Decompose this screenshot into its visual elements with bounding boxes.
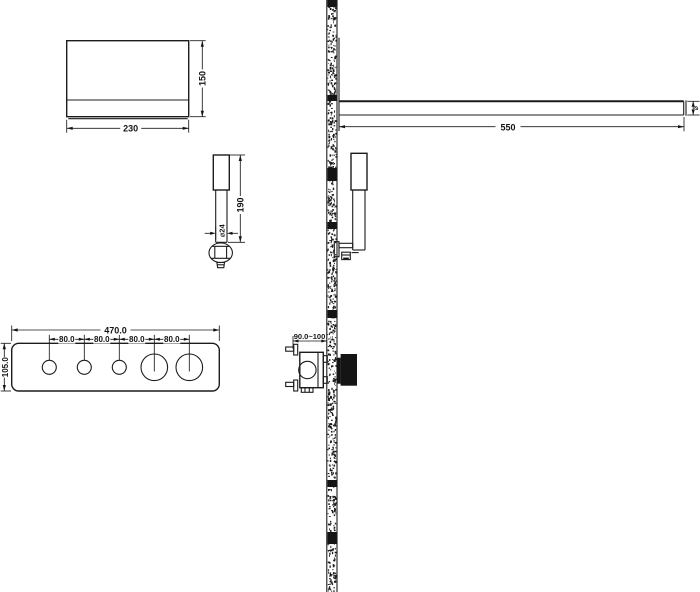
hand-shower-front-view: ⌀24 190 [205, 155, 246, 268]
dim-label-valve-depth: 90.0~100 [294, 332, 326, 341]
panel-knob-small-1 [42, 360, 56, 374]
dim-label-spacing-3: 80.0 [129, 335, 145, 344]
dim-label-panel-width: 470.0 [104, 325, 127, 335]
dim-handshower-height: 190 [228, 155, 246, 242]
dim-overhead-width: 230 [67, 120, 189, 134]
dim-panel-height: 105.0 [0, 343, 11, 391]
hand-shower-side-view [334, 153, 367, 259]
panel-knob-small-3 [112, 360, 126, 374]
dim-label-panel-height: 105.0 [1, 357, 10, 378]
dim-label-arm-end-marker: ⌀ [693, 106, 700, 110]
dim-label-handshower-diameter: ⌀24 [218, 224, 227, 238]
dim-label-overhead-height: 150 [198, 71, 208, 86]
overhead-shower-view: 150 230 [67, 41, 208, 134]
dim-label-spacing-4: 80.0 [164, 335, 180, 344]
dim-arm-end-marker: ⌀ [687, 101, 700, 115]
control-panel-front-view: 470.0 80.0 80.0 80.0 80.0 [0, 325, 219, 391]
control-panel-side-view: 90.0~100 [286, 332, 357, 393]
dim-overhead-height: 150 [190, 41, 208, 117]
shower-arm-view: 550 ⌀ [339, 38, 700, 133]
shower-installation-drawing: 150 230 ⌀ [0, 0, 700, 592]
dim-label-overhead-width: 230 [123, 124, 138, 134]
panel-knob-small-2 [77, 360, 91, 374]
dim-label-spacing-1: 80.0 [59, 335, 75, 344]
dim-label-arm-length: 550 [500, 122, 515, 132]
dim-label-handshower-height: 190 [236, 197, 246, 212]
wall-hatch-texture [327, 0, 337, 592]
dim-arm-length: 550 [339, 117, 684, 132]
dim-label-spacing-2: 80.0 [94, 335, 110, 344]
wall-section [327, 0, 338, 592]
dim-handshower-diameter: ⌀24 [205, 224, 238, 240]
valve-knob [341, 354, 357, 386]
technical-drawing-page: 150 230 ⌀ [0, 0, 700, 592]
valve-knob-stem [337, 358, 340, 384]
